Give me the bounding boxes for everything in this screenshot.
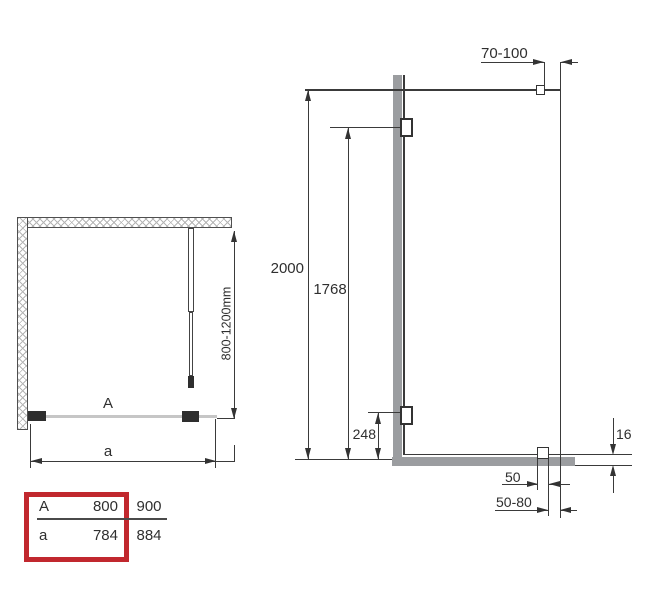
plan-width-label: a [95, 444, 121, 460]
size-table-row-A-label: A [39, 499, 55, 515]
dim-depth-arrow-top [231, 231, 237, 242]
size-table-row-A-val-900: 900 [131, 499, 167, 515]
dim-2000-line [308, 90, 309, 459]
dim-16-text: 16 [616, 427, 638, 442]
dim-70-100-arrow-right [561, 59, 572, 65]
elev-glass-bottom-edge [404, 454, 632, 455]
plan-glass-clamp [182, 411, 199, 422]
size-table-row-A-val-800: 800 [82, 499, 118, 515]
dim-2000-arrow-top [305, 90, 311, 101]
dim-50-ext-clamp-right [548, 459, 549, 516]
dim-depth-line [234, 231, 235, 419]
size-table-row-a-label: a [39, 528, 55, 544]
dim-70-100-ext-clamp [544, 62, 545, 89]
dim-248-topref [368, 412, 400, 413]
dim-50-80-arrow-right [560, 507, 571, 513]
dim-50-80-arrow-left [537, 507, 548, 513]
dim-depth-connector [217, 418, 234, 419]
elev-top-support-bar [305, 89, 561, 91]
dim-16-arrow-up [610, 465, 616, 476]
plan-wall-profile [28, 411, 46, 421]
plan-top-wall [18, 217, 232, 228]
dim-1768-text: 1768 [311, 282, 349, 298]
plan-left-wall [17, 217, 28, 430]
dim-16-shaft-top [613, 418, 614, 444]
shower-enclosure-technical-drawing: A a 800-1200mm A 800 900 a 784 884 2000 … [0, 0, 647, 600]
dim-70-100-arrow-left [533, 59, 544, 65]
dim-2000-text: 2000 [267, 261, 304, 277]
dim-70-100-text: 70-100 [481, 46, 533, 62]
dim-a-ext-right [215, 419, 216, 468]
dim-70-100-ext-glass [560, 62, 561, 90]
elev-bottom-glass-clamp [537, 447, 549, 459]
size-table-row-a-val-784: 784 [82, 528, 118, 544]
dim-1768-topref [330, 127, 400, 128]
elev-upper-wall-bracket [400, 118, 413, 137]
dim-50-arrow-right [549, 481, 560, 487]
dim-1768-arrow-top [345, 128, 351, 139]
dim-a-arrow-left [31, 458, 42, 464]
elev-lower-wall-bracket [400, 406, 413, 425]
dim-16-arrow-down [610, 444, 616, 455]
dim-depth-text: 800-1200mm [221, 279, 234, 369]
elev-floor-line [295, 459, 392, 460]
dim-a-line [31, 461, 234, 462]
dim-248-text: 248 [349, 427, 376, 442]
elev-rail-bottom-ext [575, 465, 632, 466]
dim-248-arrow-bottom [375, 448, 381, 459]
size-table-row-a-val-884: 884 [131, 528, 167, 544]
dim-a-ext-step [234, 445, 235, 462]
plan-support-bar-tip [188, 376, 194, 388]
dim-248-arrow-top [375, 413, 381, 424]
dim-50-80-text: 50-80 [496, 495, 538, 510]
dim-2000-arrow-bottom [305, 448, 311, 459]
plan-support-bar-lower [189, 312, 193, 376]
plan-support-bar-upper [188, 228, 194, 312]
dim-a-ext-left [30, 424, 31, 468]
size-table-separator [37, 518, 167, 520]
plan-enclosure-label: A [95, 396, 121, 412]
dim-1768-arrow-bottom [345, 448, 351, 459]
dim-16-shaft-bottom [613, 476, 614, 493]
dim-50-ext-clamp-left [537, 459, 538, 490]
dim-50-text: 50 [505, 470, 527, 485]
